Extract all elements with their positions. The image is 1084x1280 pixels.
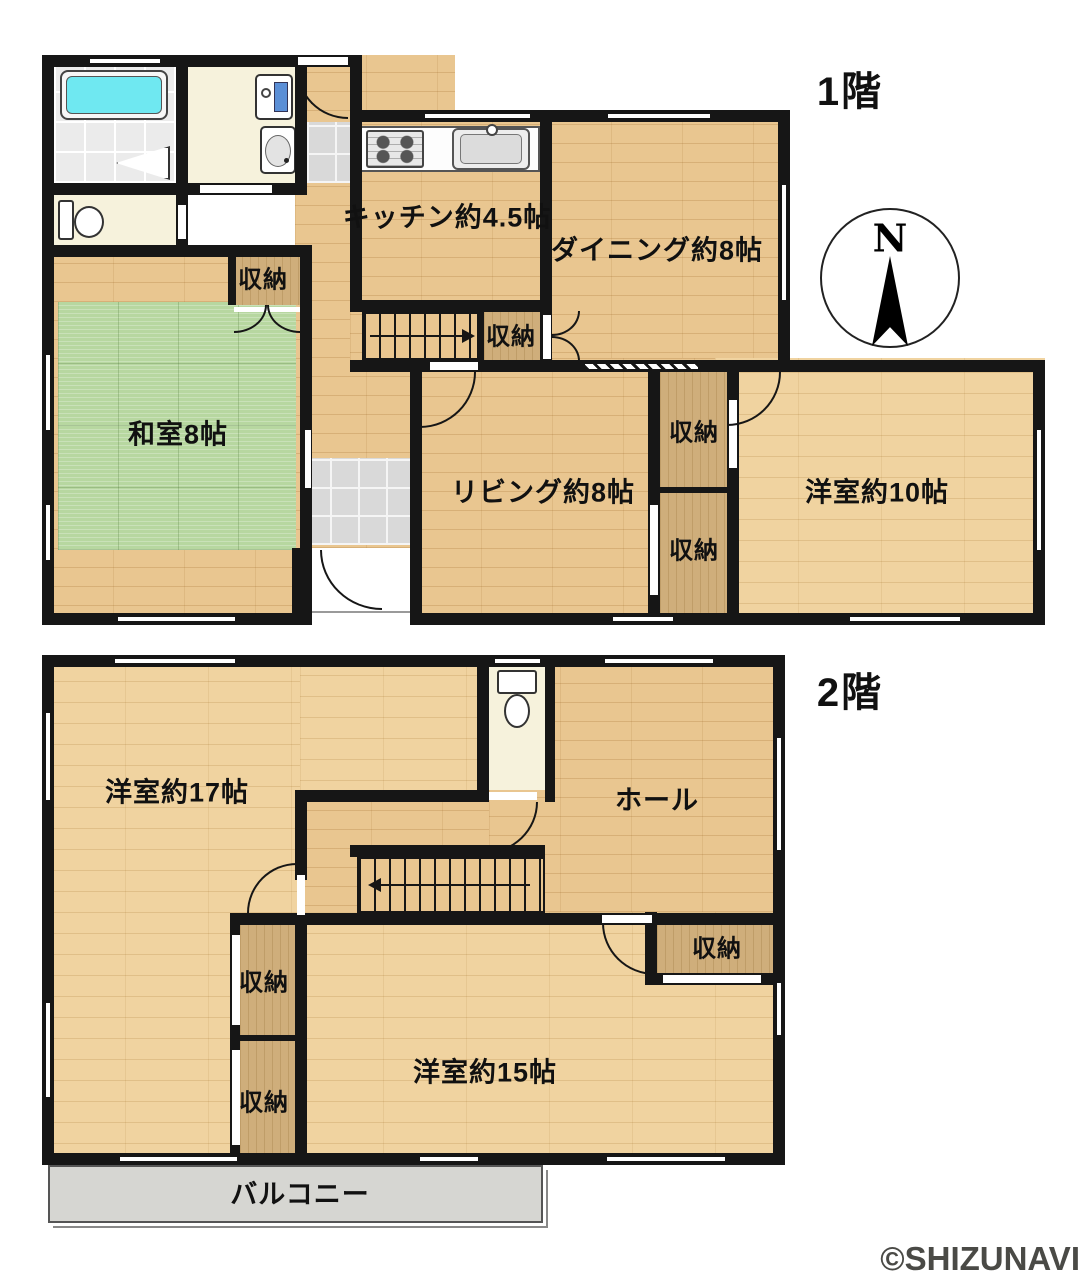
door-opening — [543, 315, 551, 359]
floor-western17-top — [300, 655, 489, 802]
wall — [350, 300, 552, 312]
floor2-title: 2階 — [817, 660, 883, 718]
stove-icon — [366, 130, 424, 168]
floor1-title: 1階 — [817, 59, 883, 117]
open-passage-hatch — [585, 362, 698, 371]
kitchen-faucet-icon — [486, 124, 498, 136]
window-icon — [613, 615, 673, 623]
room-label-western17: 洋室約17帖 — [105, 771, 249, 810]
door-opening — [650, 505, 658, 595]
floor-genkan — [302, 458, 412, 545]
toilet1-bowl-icon — [74, 206, 104, 238]
window-icon — [780, 185, 788, 300]
storage-label-1f-b: 収納 — [486, 317, 536, 352]
washing-machine-knob-icon — [261, 88, 271, 98]
window-icon — [420, 1155, 478, 1163]
door-opening — [297, 875, 305, 915]
storage-label-2f-c: 収納 — [692, 929, 742, 964]
storage-label-1f-c: 収納 — [669, 413, 719, 448]
door-opening — [602, 915, 652, 923]
window-icon — [44, 713, 52, 800]
storage-label-2f-a: 収納 — [239, 963, 289, 998]
watermark: ©SHIZUNAVI — [880, 1240, 1080, 1278]
window-icon — [850, 615, 960, 623]
room-label-western10: 洋室約10帖 — [805, 471, 949, 510]
door-opening — [178, 205, 186, 239]
window-icon — [1035, 430, 1043, 550]
window-icon — [115, 657, 235, 665]
floor-service-landing — [307, 122, 352, 183]
toilet2-bowl-icon — [504, 694, 530, 728]
window-icon — [775, 738, 783, 850]
door-opening — [663, 975, 761, 983]
room-label-dining: ダイニング約8帖 — [551, 229, 763, 268]
room-label-washitsu: 和室8帖 — [128, 413, 228, 452]
washbasin-drain-icon — [284, 158, 289, 163]
wall — [350, 845, 545, 857]
room-label-hall: ホール — [615, 779, 699, 818]
door-arc-entrance — [320, 550, 382, 610]
door-opening — [305, 430, 311, 488]
door-opening — [200, 185, 272, 193]
toilet2-tank-icon — [497, 670, 537, 694]
storage-label-1f-d: 収納 — [669, 531, 719, 566]
room-label-living: リビング約8帖 — [451, 471, 635, 510]
entrance-step-line — [312, 611, 410, 613]
room-label-balcony: バルコニー — [230, 1173, 369, 1212]
wall — [240, 1035, 295, 1041]
wall — [477, 655, 489, 802]
window-icon — [775, 983, 783, 1035]
window-icon — [44, 1003, 52, 1097]
wall — [660, 487, 727, 493]
compass-north-label: N — [873, 216, 908, 261]
window-icon — [605, 657, 713, 665]
wall — [176, 55, 188, 195]
window-icon — [495, 657, 540, 665]
wall — [477, 312, 484, 360]
toilet1-tank-icon — [58, 200, 74, 240]
bathtub-water-icon — [66, 76, 162, 114]
window-icon — [118, 615, 235, 623]
window-icon — [608, 112, 710, 120]
window-icon — [607, 1155, 725, 1163]
room-label-western15: 洋室約15帖 — [413, 1051, 557, 1090]
door-opening — [298, 57, 348, 65]
wall — [545, 655, 555, 802]
wall — [228, 251, 236, 305]
door-opening — [489, 792, 537, 800]
washing-machine-lid-icon — [274, 82, 288, 112]
window-icon — [425, 112, 530, 120]
storage-label-1f-a: 収納 — [238, 260, 288, 295]
window-icon — [44, 505, 52, 560]
wall — [640, 360, 1045, 372]
floorplan-canvas: 1階キッチン約4.5帖ダイニング約8帖和室8帖リビング約8帖洋室約10帖収納収納… — [0, 0, 1084, 1280]
stairs-2f-arrow — [380, 884, 530, 886]
wall — [295, 913, 307, 1165]
wall — [42, 245, 312, 257]
stairs-1f-arrow — [370, 335, 462, 337]
wall — [773, 655, 785, 1165]
window-icon — [44, 355, 52, 430]
room-label-kitchen: キッチン約4.5帖 — [343, 196, 552, 235]
door-opening — [430, 362, 478, 370]
storage-label-2f-b: 収納 — [239, 1083, 289, 1118]
wall — [295, 790, 489, 802]
kitchen-sink-basin-icon — [460, 134, 522, 164]
stairs-2f-arrowhead-icon — [368, 878, 381, 892]
wall — [350, 913, 773, 925]
window-icon — [90, 57, 160, 65]
wall — [292, 548, 302, 613]
stairs-1f-arrowhead-icon — [462, 329, 475, 343]
window-icon — [120, 1155, 237, 1163]
